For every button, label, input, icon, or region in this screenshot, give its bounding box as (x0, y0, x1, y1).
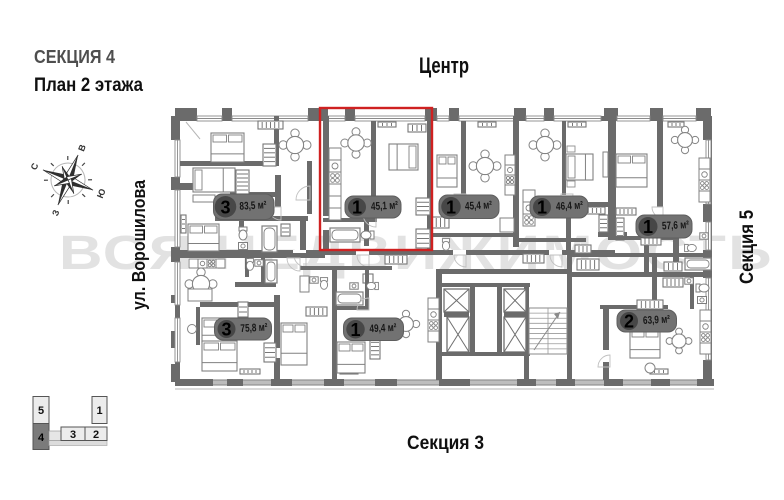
svg-text:3: 3 (70, 429, 76, 441)
svg-text:2: 2 (624, 312, 634, 332)
svg-text:49,4 м²: 49,4 м² (369, 322, 397, 335)
svg-text:57,6 м²: 57,6 м² (662, 219, 690, 232)
svg-text:Центр: Центр (419, 53, 469, 78)
svg-text:СЕКЦИЯ 4: СЕКЦИЯ 4 (34, 46, 116, 67)
svg-text:1: 1 (96, 405, 102, 417)
svg-text:5: 5 (38, 405, 44, 417)
svg-text:1: 1 (352, 198, 362, 218)
svg-text:1: 1 (643, 217, 653, 237)
svg-text:75,8 м²: 75,8 м² (240, 322, 268, 335)
svg-text:45,1 м²: 45,1 м² (371, 200, 399, 213)
svg-text:1: 1 (350, 320, 360, 340)
svg-text:Секция 5: Секция 5 (737, 210, 758, 284)
svg-text:С: С (29, 161, 41, 171)
svg-text:46,4 м²: 46,4 м² (556, 200, 584, 213)
svg-text:Ю: Ю (95, 187, 108, 199)
svg-text:План 2 этажа: План 2 этажа (34, 75, 143, 96)
svg-text:2: 2 (93, 429, 99, 441)
svg-text:1: 1 (537, 198, 547, 218)
svg-text:83,5 м²: 83,5 м² (239, 199, 267, 212)
svg-text:Секция 3: Секция 3 (407, 432, 484, 454)
svg-text:45,4 м²: 45,4 м² (465, 199, 493, 212)
svg-text:З: З (50, 208, 62, 217)
svg-text:4: 4 (38, 432, 45, 444)
svg-text:3: 3 (221, 320, 231, 340)
svg-text:3: 3 (220, 197, 230, 217)
svg-text:1: 1 (446, 197, 456, 217)
svg-text:63,9 м²: 63,9 м² (643, 314, 671, 327)
svg-text:ул. Ворошилова: ул. Ворошилова (129, 179, 149, 310)
svg-text:В: В (76, 143, 88, 153)
